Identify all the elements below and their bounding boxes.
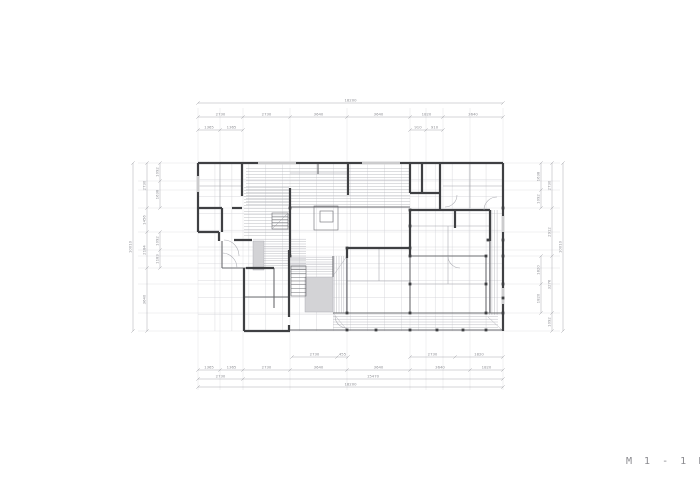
svg-text:2730: 2730 (547, 180, 552, 190)
hearth-squares (314, 206, 338, 230)
svg-text:1183: 1183 (155, 254, 160, 264)
svg-text:910: 910 (414, 125, 422, 130)
svg-text:1820: 1820 (536, 265, 541, 275)
svg-text:1820: 1820 (482, 365, 492, 370)
svg-text:1820: 1820 (474, 352, 484, 357)
svg-text:15470: 15470 (367, 374, 380, 379)
svg-text:3640: 3640 (314, 112, 324, 117)
svg-text:2184: 2184 (142, 245, 147, 255)
svg-text:10010: 10010 (128, 240, 133, 253)
svg-text:2912: 2912 (547, 227, 552, 237)
dimensions: 1820027302730364036401820364013651365910… (128, 98, 565, 389)
floor-plan-svg: 1820027302730364036401820364013651365910… (0, 0, 700, 495)
svg-text:3640: 3640 (374, 365, 384, 370)
svg-text:2730: 2730 (216, 374, 226, 379)
fixture-fills (253, 241, 333, 312)
svg-text:18200: 18200 (344, 98, 357, 103)
svg-text:3640: 3640 (142, 294, 147, 304)
svg-text:1820: 1820 (422, 112, 432, 117)
svg-text:2730: 2730 (428, 352, 438, 357)
svg-text:910: 910 (431, 125, 439, 130)
svg-text:1365: 1365 (227, 365, 237, 370)
svg-text:1456: 1456 (142, 215, 147, 225)
svg-text:2730: 2730 (310, 352, 320, 357)
svg-text:3640: 3640 (314, 365, 324, 370)
svg-text:1365: 1365 (204, 365, 214, 370)
svg-text:2730: 2730 (142, 180, 147, 190)
svg-text:18200: 18200 (344, 382, 357, 387)
drawing-title: M 1 - 1 F (626, 456, 700, 467)
svg-text:1820: 1820 (536, 293, 541, 303)
svg-text:3640: 3640 (435, 365, 445, 370)
svg-text:1365: 1365 (227, 125, 237, 130)
svg-text:2730: 2730 (216, 112, 226, 117)
svg-text:1365: 1365 (204, 125, 214, 130)
svg-text:455: 455 (339, 352, 347, 357)
svg-text:3640: 3640 (374, 112, 384, 117)
drawing-sheet: 1820027302730364036401820364013651365910… (0, 0, 700, 495)
svg-text:10010: 10010 (558, 240, 563, 253)
svg-text:2730: 2730 (262, 112, 272, 117)
svg-text:2730: 2730 (262, 365, 272, 370)
svg-text:1092: 1092 (155, 236, 160, 246)
svg-text:1638: 1638 (536, 171, 541, 181)
svg-text:3640: 3640 (468, 112, 478, 117)
svg-text:1092: 1092 (155, 167, 160, 177)
svg-text:1092: 1092 (536, 194, 541, 204)
svg-text:1638: 1638 (155, 189, 160, 199)
svg-text:3276: 3276 (547, 279, 552, 289)
svg-text:1092: 1092 (547, 317, 552, 327)
